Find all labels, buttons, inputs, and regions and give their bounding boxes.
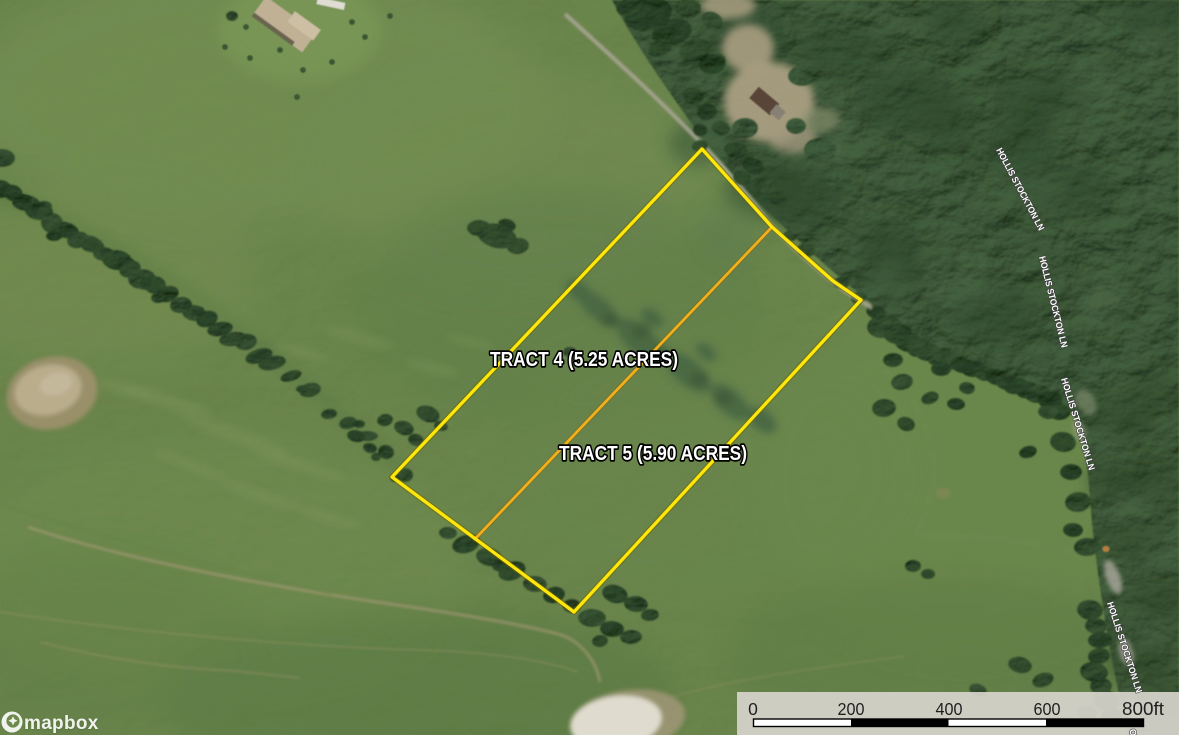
svg-text:mapbox: mapbox — [24, 713, 99, 734]
svg-text:200: 200 — [838, 699, 865, 719]
svg-text:800ft: 800ft — [1122, 699, 1164, 719]
svg-text:TRACT 4 (5.25 ACRES): TRACT 4 (5.25 ACRES) — [490, 348, 678, 371]
svg-text:400: 400 — [936, 699, 963, 719]
svg-text:0: 0 — [748, 699, 758, 719]
svg-text:TRACT 5 (5.90 ACRES): TRACT 5 (5.90 ACRES) — [559, 442, 747, 465]
svg-text:600: 600 — [1034, 699, 1061, 719]
